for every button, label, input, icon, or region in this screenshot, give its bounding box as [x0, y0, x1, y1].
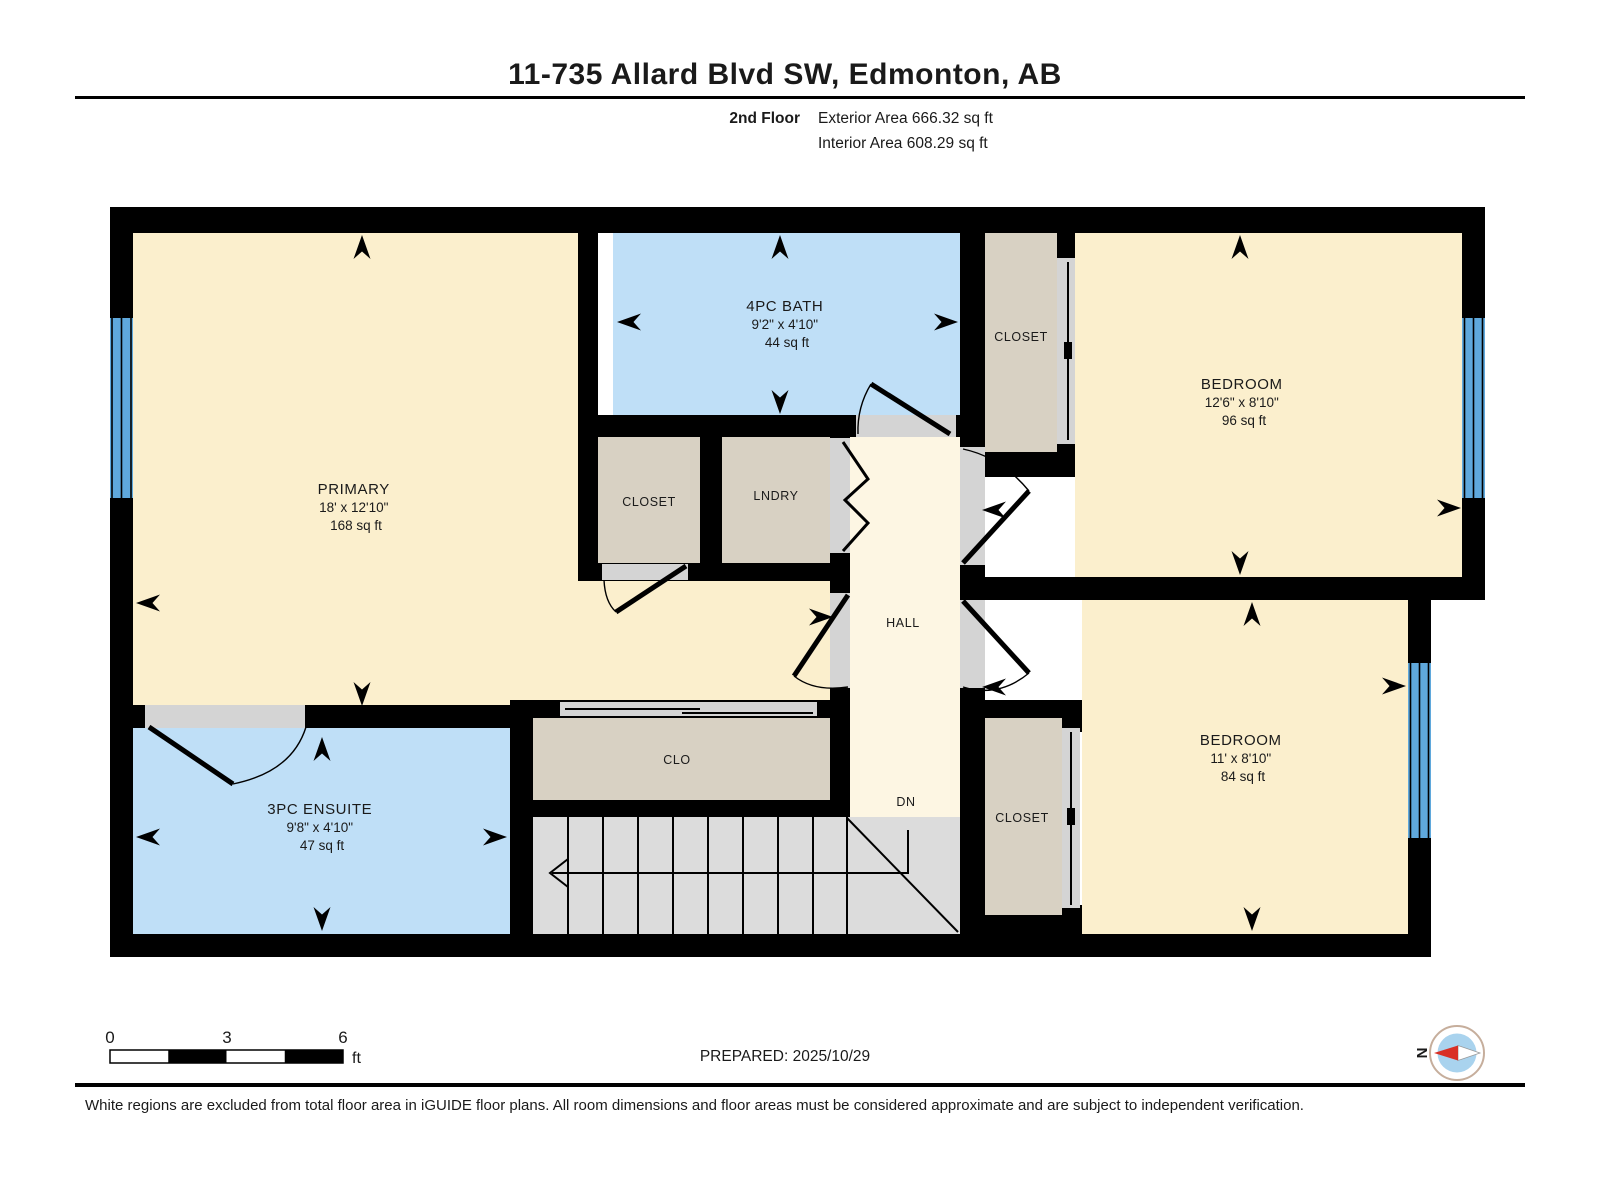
floor-label: 2nd Floor — [729, 110, 800, 127]
page-title: 11-735 Allard Blvd SW, Edmonton, AB — [508, 58, 1062, 91]
compass-icon: N — [1414, 1026, 1484, 1080]
sliding-door-closet-hall — [560, 702, 817, 716]
label-hall: HALL — [886, 616, 920, 630]
footer-disclaimer: White regions are excluded from total fl… — [85, 1097, 1304, 1114]
label-closet-bottom-right: CLOSET — [995, 811, 1049, 825]
stairs-area — [533, 817, 960, 934]
header-divider — [75, 96, 1525, 99]
label-stairs-down: DN — [896, 795, 915, 809]
scale-tick-0: 0 — [105, 1028, 114, 1047]
label-laundry: LNDRY — [753, 489, 798, 503]
measure-arrow — [982, 502, 1006, 519]
room-bedroom-2 — [1082, 600, 1408, 934]
floor-plan-page: 11-735 Allard Blvd SW, Edmonton, AB 2nd … — [0, 0, 1600, 1200]
header: 11-735 Allard Blvd SW, Edmonton, AB 2nd … — [75, 58, 1525, 152]
prepared-date-label: PREPARED: 2025/10/29 — [700, 1048, 870, 1065]
room-primary-band — [578, 581, 830, 705]
compass-north-label: N — [1414, 1048, 1431, 1059]
label-closet-middle: CLOSET — [622, 495, 676, 509]
scale-unit-label: ft — [352, 1050, 361, 1067]
door-bedroom2 — [960, 600, 1029, 690]
footer-divider — [75, 1083, 1525, 1087]
room-primary — [133, 233, 578, 705]
scale-tick-6: 6 — [338, 1028, 347, 1047]
floor-plan-canvas: 11-735 Allard Blvd SW, Edmonton, AB 2nd … — [0, 0, 1600, 1200]
scale-tick-3: 3 — [222, 1028, 231, 1047]
interior-area-label: Interior Area 608.29 sq ft — [818, 135, 988, 152]
window-bedroom1-right — [1462, 318, 1485, 498]
sliding-door-closet-top-right — [1057, 258, 1075, 444]
label-closet-hall: CLO — [663, 753, 691, 767]
footer: White regions are excluded from total fl… — [75, 1083, 1525, 1114]
scale-bar: 0 3 6 ft — [105, 1028, 361, 1067]
window-primary-left — [110, 318, 133, 498]
window-bedroom2-right — [1408, 663, 1431, 838]
label-closet-top-right: CLOSET — [994, 330, 1048, 344]
exterior-area-label: Exterior Area 666.32 sq ft — [818, 110, 994, 127]
measure-arrow — [982, 679, 1006, 696]
sliding-door-closet-bottom-right — [1062, 728, 1080, 908]
